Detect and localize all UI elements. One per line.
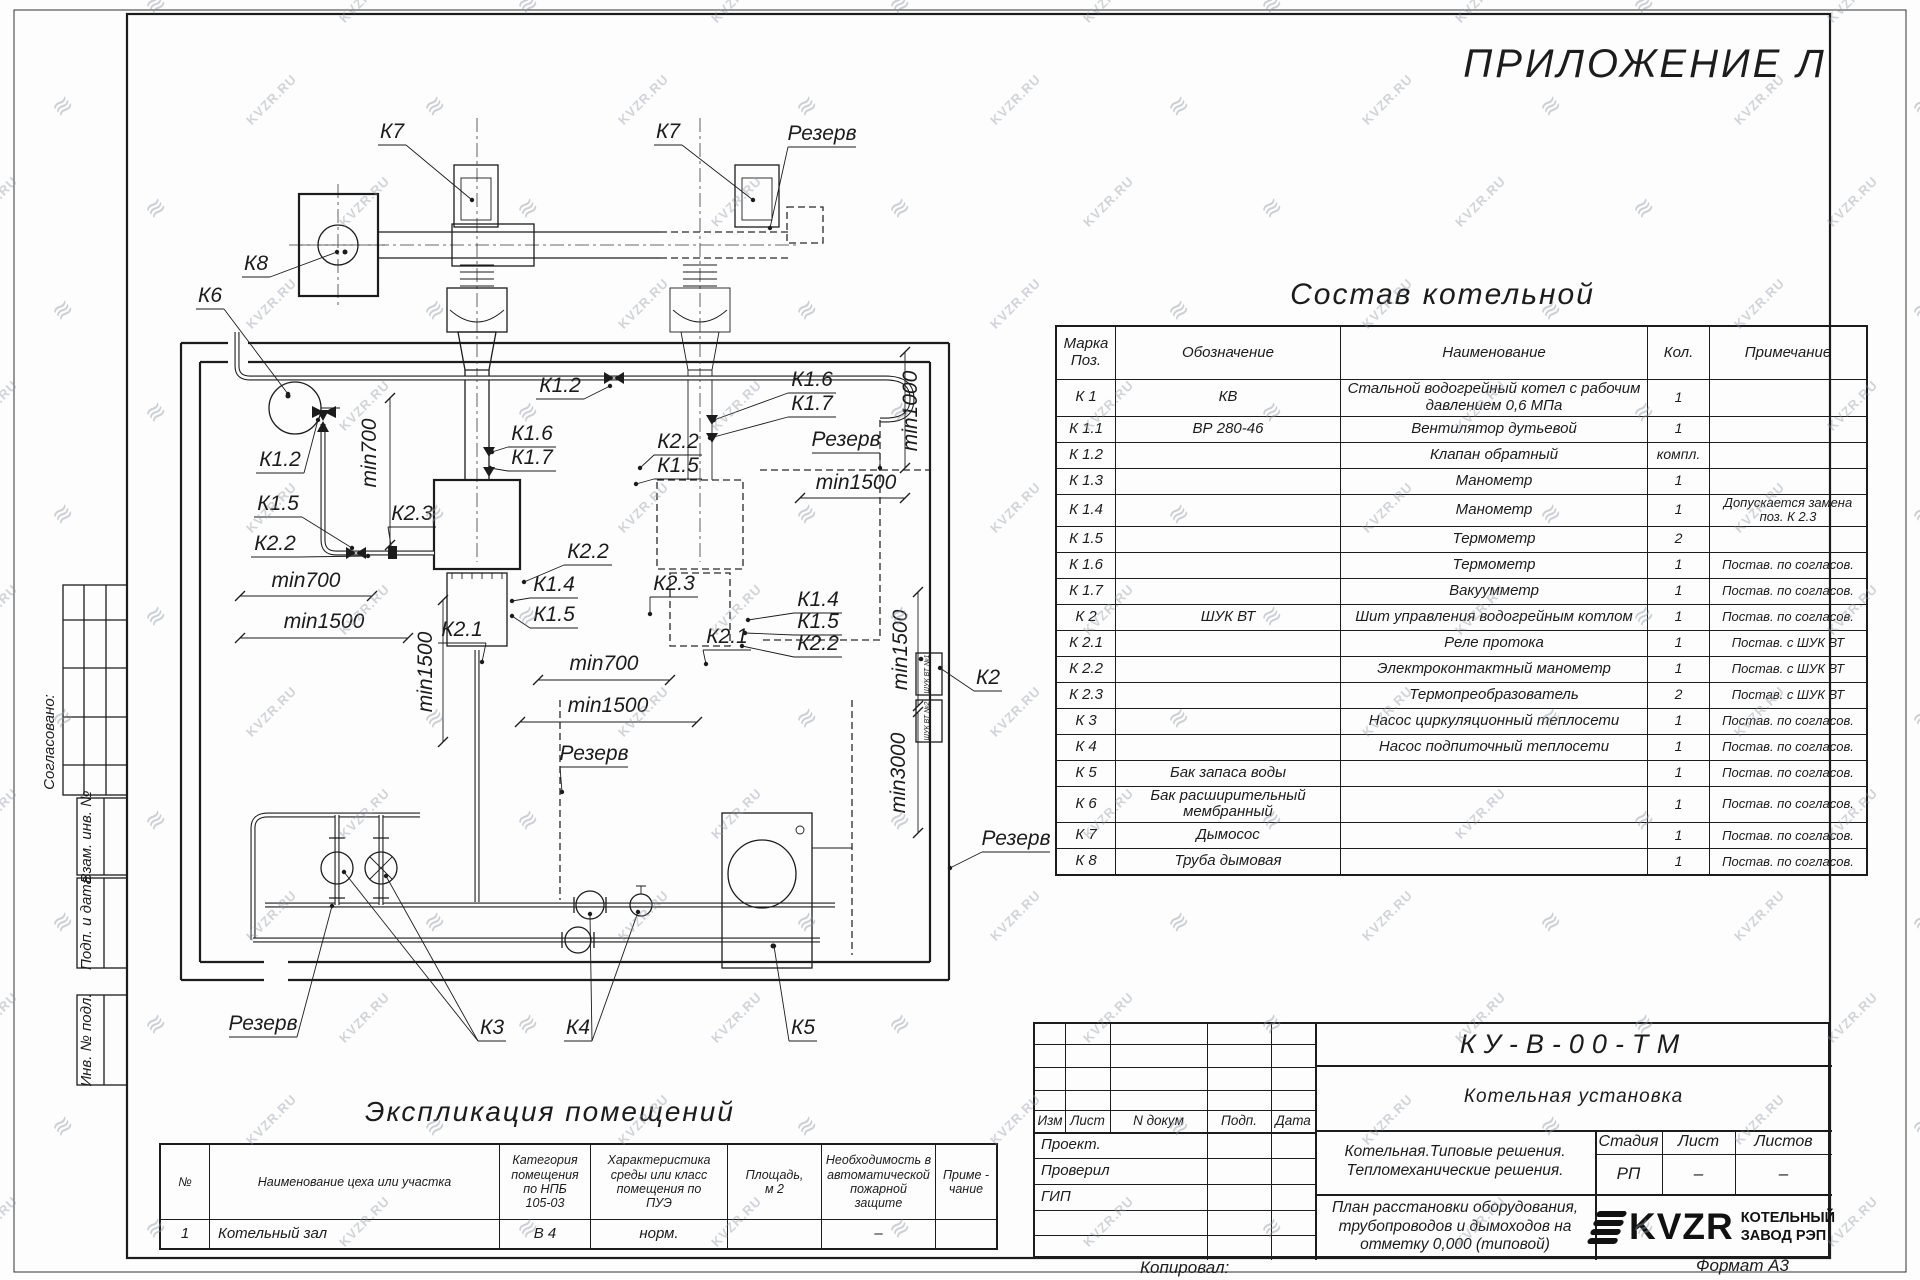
pumps-k3 [321,838,397,898]
plan-label: К1.7 [791,392,834,415]
format-label: Формат А3 [1660,1256,1825,1276]
plan-label: К1.7 [511,446,554,469]
comp-table-cell: 1 [1648,630,1710,656]
comp-table-cell: 1 [1648,604,1710,630]
comp-table-cell: Насос циркуляционный теплосети [1341,708,1648,734]
comp-table-cell: К 1.6 [1056,552,1116,578]
plan-label: К1.5 [657,454,699,477]
expl-table-cell: норм. [591,1220,728,1250]
left-margin-boxes [63,585,127,1085]
expl-col-header: Категория помещения по НПБ 105-03 [500,1144,591,1220]
comp-table-cell: 1 [1648,656,1710,682]
comp-table-cell: Постав. с ШУК ВТ [1710,630,1868,656]
comp-table-cell: 1 [1648,708,1710,734]
comp-table-cell: Постав. по согласов. [1710,786,1868,823]
role-checked: Проверил [1037,1158,1209,1184]
comp-table-cell: Постав. по согласов. [1710,734,1868,760]
sheet-label: Лист [1662,1130,1735,1154]
plan-label: К1.2 [259,448,301,471]
comp-table-cell: ШУК ВТ [1116,604,1341,630]
comp-table-cell [1116,578,1341,604]
comp-table-cell [1116,442,1341,468]
plan-label: min1000 [899,370,922,451]
comp-table-row: К 2.2Электроконтактный манометр1Постав. … [1056,656,1867,682]
comp-table-row: К 6Бак расширительный мембранный1Постав.… [1056,786,1867,823]
comp-table-cell: 1 [1648,786,1710,823]
comp-table-row: К 1КВСтальной водогрейный котел с рабочи… [1056,380,1867,417]
comp-table-cell: 1 [1648,552,1710,578]
plan-label: К2.1 [441,618,483,641]
appendix-title: ПРИЛОЖЕНИЕ Л [1450,42,1840,87]
comp-table-row: К 2ШУК ВТШит управления водогрейным котл… [1056,604,1867,630]
comp-table-cell: 1 [1648,760,1710,786]
plan-label: Резерв [228,1012,297,1035]
comp-table-cell [1710,442,1868,468]
comp-col-header: Кол. [1648,326,1710,380]
sheet-name: План расстановки оборудования, трубопров… [1315,1194,1595,1260]
comp-table-cell: Термопреобразователь [1341,682,1648,708]
drawing-sheet: Согласовано:Взам. инв. №Подп. и датаИнв.… [0,0,1920,1280]
comp-table-cell: Постав. по согласов. [1710,760,1868,786]
comp-table-cell: Термометр [1341,552,1648,578]
comp-table-cell: К 2 [1056,604,1116,630]
comp-table-cell [1116,468,1341,494]
comp-table-cell: Постав. по согласов. [1710,708,1868,734]
stage-value: РП [1595,1154,1662,1194]
comp-table-cell: К 8 [1056,849,1116,876]
stage-label: Стадия [1595,1130,1662,1154]
comp-table-cell [1710,380,1868,417]
plan-label: Резерв [559,742,628,765]
comp-table-row: К 4Насос подпиточный теплосети1Постав. п… [1056,734,1867,760]
expl-table-cell: – [822,1220,936,1250]
comp-table-cell [1116,630,1341,656]
expl-col-header: Характеристика среды или класс помещения… [591,1144,728,1220]
margin-stamp-label: Подп. и дата [78,876,95,970]
expl-table-cell: Котельный зал [210,1220,500,1250]
comp-table-row: К 8Труба дымовая1Постав. по согласов. [1056,849,1867,876]
plan-label: К6 [198,284,222,307]
comp-table-cell: К 1.3 [1056,468,1116,494]
comp-table-cell: К 5 [1056,760,1116,786]
comp-table-cell: Постав. с ШУК ВТ [1710,682,1868,708]
doc-code: КУ-В-00-ТМ [1315,1024,1832,1065]
plan-label: К1.6 [511,422,553,445]
plan-label: К1.5 [797,610,839,633]
comp-table-cell: Термометр [1341,526,1648,552]
comp-col-header: Обозначение [1116,326,1341,380]
plan-label: min1500 [284,610,365,633]
expl-col-header: Наименование цеха или участка [210,1144,500,1220]
margin-stamp-label: Инв. № подл. [78,993,95,1086]
expl-table-cell [728,1220,822,1250]
role-gip: ГИП [1037,1184,1209,1210]
plan-label: К1.4 [533,573,575,596]
comp-table-cell: Вакуумметр [1341,578,1648,604]
plan-label: К2.2 [567,540,609,563]
comp-col-header: Марка Поз. [1056,326,1116,380]
comp-table-cell: К 2.1 [1056,630,1116,656]
comp-table-cell: К 2.3 [1056,682,1116,708]
plan-label: К1.2 [539,374,581,397]
comp-col-header: Примечание [1710,326,1868,380]
plan-label: min700 [272,569,341,592]
plan-label: К2 [976,666,1000,689]
comp-table-row: К 7Дымосос1Постав. по согласов. [1056,823,1867,849]
comp-table-cell [1116,494,1341,526]
comp-table-cell: Допускается замена поз. К 2.3 [1710,494,1868,526]
expl-table-cell: 1 [160,1220,210,1250]
plan-label: К7 [380,120,405,143]
plan-label: К3 [480,1016,504,1039]
company-name: КОТЕЛЬНЫЙ ЗАВОД РЭП [1741,1209,1835,1245]
comp-table-row: К 1.3Манометр1 [1056,468,1867,494]
plan-label: К4 [566,1016,590,1039]
comp-table-cell: КВ [1116,380,1341,417]
comp-table-cell: ВР 280-46 [1116,416,1341,442]
comp-table-cell: К 2.2 [1056,656,1116,682]
comp-table-cell: 1 [1648,416,1710,442]
comp-table-cell: Насос подпиточный теплосети [1341,734,1648,760]
comp-table-cell [1341,849,1648,876]
comp-table-cell: К 1.5 [1056,526,1116,552]
comp-table-row: К 1.5Термометр2 [1056,526,1867,552]
comp-table-cell: 1 [1648,734,1710,760]
plan-label: К1.6 [791,368,833,391]
comp-table-cell: Постав. по согласов. [1710,578,1868,604]
comp-table-cell: Реле протока [1341,630,1648,656]
expl-table-cell [936,1220,998,1250]
comp-table-cell: К 3 [1056,708,1116,734]
comp-table-cell: К 4 [1056,734,1116,760]
water-tank-k5 [722,813,852,968]
plan-label: Резерв [811,428,880,451]
plan-label: К2.3 [391,502,433,525]
plan-label: К2.1 [706,625,748,648]
comp-table-cell: Стальной водогрейный котел с рабочим дав… [1341,380,1648,417]
comp-col-header: Наименование [1341,326,1648,380]
comp-table-cell: К 1.1 [1056,416,1116,442]
comp-table-cell: 1 [1648,578,1710,604]
comp-table-row: К 1.1ВР 280-46Вентилятор дутьевой1 [1056,416,1867,442]
comp-table-cell: 2 [1648,526,1710,552]
comp-table-cell: Постав. по согласов. [1710,849,1868,876]
margin-stamp-label: Взам. инв. № [78,791,95,884]
comp-table-cell: Бак запаса воды [1116,760,1341,786]
expl-table-row: 1Котельный залВ 4норм.– [160,1220,997,1250]
comp-table-cell [1710,526,1868,552]
comp-table-cell: Электроконтактный манометр [1341,656,1648,682]
comp-table-cell: Манометр [1341,468,1648,494]
plan-label: К2.2 [657,430,699,453]
control-panel-label: ШУК ВТ №1 [924,654,931,693]
plan-label: min700 [570,652,639,675]
comp-table-cell: Постав. по согласов. [1710,823,1868,849]
comp-table-cell: К 1.4 [1056,494,1116,526]
comp-table-cell [1116,526,1341,552]
plan-label: min1500 [568,694,649,717]
left-margin-labels: Согласовано:Взам. инв. №Подп. и датаИнв.… [41,694,95,1086]
kvzr-logo-text: KVZR [1629,1206,1734,1248]
expl-col-header: Приме - чание [936,1144,998,1220]
comp-table-row: К 1.6Термометр1Постав. по согласов. [1056,552,1867,578]
plan-label: К1.5 [257,492,299,515]
expl-col-header: Необходимость в автоматической пожарной … [822,1144,936,1220]
comp-table-cell: К 6 [1056,786,1116,823]
sheet-value: – [1662,1154,1735,1194]
plan-label: К2.3 [653,572,695,595]
comp-table-cell: 1 [1648,823,1710,849]
comp-table-row: К 1.2Клапан обратныйкомпл. [1056,442,1867,468]
plan-label: Резерв [981,827,1050,850]
comp-table-cell: 2 [1648,682,1710,708]
comp-table-row: К 1.7Вакуумметр1Постав. по согласов. [1056,578,1867,604]
comp-table-cell [1116,656,1341,682]
expansion-tank-k6 [269,382,340,434]
comp-table-cell: К 1 [1056,380,1116,417]
plan-label: К5 [791,1016,815,1039]
comp-table-row: К 3Насос циркуляционный теплосети1Постав… [1056,708,1867,734]
composition-table-title: Состав котельной [1055,278,1830,312]
comp-table-cell [1710,468,1868,494]
company-logo: KVZR КОТЕЛЬНЫЙ ЗАВОД РЭП [1595,1194,1832,1260]
rev-header-ndoc: N докум [1110,1110,1207,1132]
comp-table-cell: К 1.2 [1056,442,1116,468]
plan-label: min700 [358,418,381,487]
role-project: Проект. [1037,1132,1209,1158]
composition-table-body: К 1КВСтальной водогрейный котел с рабочи… [1056,380,1867,876]
plan-label: К1.5 [533,603,575,626]
composition-table-head: Марка Поз.ОбозначениеНаименованиеКол.При… [1056,326,1867,380]
plan-label: min1500 [414,631,437,712]
control-panel-label: ШУК ВТ №2 [924,701,931,740]
expl-col-header: № [160,1144,210,1220]
comp-table-cell: компл. [1648,442,1710,468]
composition-table: Марка Поз.ОбозначениеНаименованиеКол.При… [1055,325,1830,876]
copied-label: Копировал: [1140,1258,1360,1278]
comp-table-cell: 1 [1648,468,1710,494]
explication-table-body: 1Котельный залВ 4норм.– [160,1220,997,1250]
comp-table-cell: Дымосос [1116,823,1341,849]
explication-table-title: Экспликация помещений [240,1096,860,1128]
project-name: Котельная.Типовые решения. Тепломеханиче… [1315,1130,1595,1194]
rev-header-podp: Подп. [1207,1110,1271,1132]
rev-header-data: Дата [1271,1110,1315,1132]
comp-table-cell: К 1.7 [1056,578,1116,604]
comp-table-row: К 2.3Термопреобразователь2Постав. с ШУК … [1056,682,1867,708]
explication-table: №Наименование цеха или участкаКатегория … [159,1143,946,1250]
plan-label: К2.2 [797,632,839,655]
sheets-value: – [1735,1154,1832,1194]
plan-label: К2.2 [254,532,296,555]
plan-label: min1500 [816,471,897,494]
sheets-label: Листов [1735,1130,1832,1154]
comp-table-cell: Постав. с ШУК ВТ [1710,656,1868,682]
centerlines [289,118,800,562]
comp-table-cell: 1 [1648,380,1710,417]
comp-table-row: К 2.1Реле протока1Постав. с ШУК ВТ [1056,630,1867,656]
comp-table-cell: Труба дымовая [1116,849,1341,876]
comp-table-cell [1116,734,1341,760]
comp-table-cell: Вентилятор дутьевой [1341,416,1648,442]
comp-table-cell: Шит управления водогрейным котлом [1341,604,1648,630]
comp-table-cell [1116,682,1341,708]
margin-stamp-label: Согласовано: [41,694,58,790]
plan-label: Резерв [787,122,856,145]
comp-table-cell: Клапан обратный [1341,442,1648,468]
object-name: Котельная установка [1315,1065,1832,1130]
comp-table-cell [1341,786,1648,823]
expl-col-header: Площадь, м 2 [728,1144,822,1220]
plan-label: К7 [656,120,681,143]
explication-table-head: №Наименование цеха или участкаКатегория … [160,1144,997,1220]
comp-table-cell [1341,760,1648,786]
comp-table-row: К 1.4Манометр1Допускается замена поз. К … [1056,494,1867,526]
comp-table-row: К 5Бак запаса воды1Постав. по согласов. [1056,760,1867,786]
plan-label: К1.4 [797,588,839,611]
expl-table-cell: В 4 [500,1220,591,1250]
plan-label: min1500 [889,609,912,690]
comp-table-cell: Постав. по согласов. [1710,552,1868,578]
title-block: Изм Лист N докум Подп. Дата Проект. Пров… [1033,1022,1830,1258]
comp-table-cell: 1 [1648,494,1710,526]
plan-label: min3000 [887,732,910,813]
pumps-k4 [562,886,652,953]
plan-label: К8 [244,252,268,275]
comp-table-cell [1116,552,1341,578]
comp-table-cell: 1 [1648,849,1710,876]
comp-table-cell [1116,708,1341,734]
comp-table-cell: Бак расширительный мембранный [1116,786,1341,823]
rev-header-list: Лист [1065,1110,1110,1132]
comp-table-cell [1341,823,1648,849]
comp-table-cell [1710,416,1868,442]
rev-header-izm: Изм [1035,1110,1065,1132]
reserve-pipes [560,420,930,955]
comp-table-cell: К 7 [1056,823,1116,849]
comp-table-cell: Манометр [1341,494,1648,526]
comp-table-cell: Постав. по согласов. [1710,604,1868,630]
